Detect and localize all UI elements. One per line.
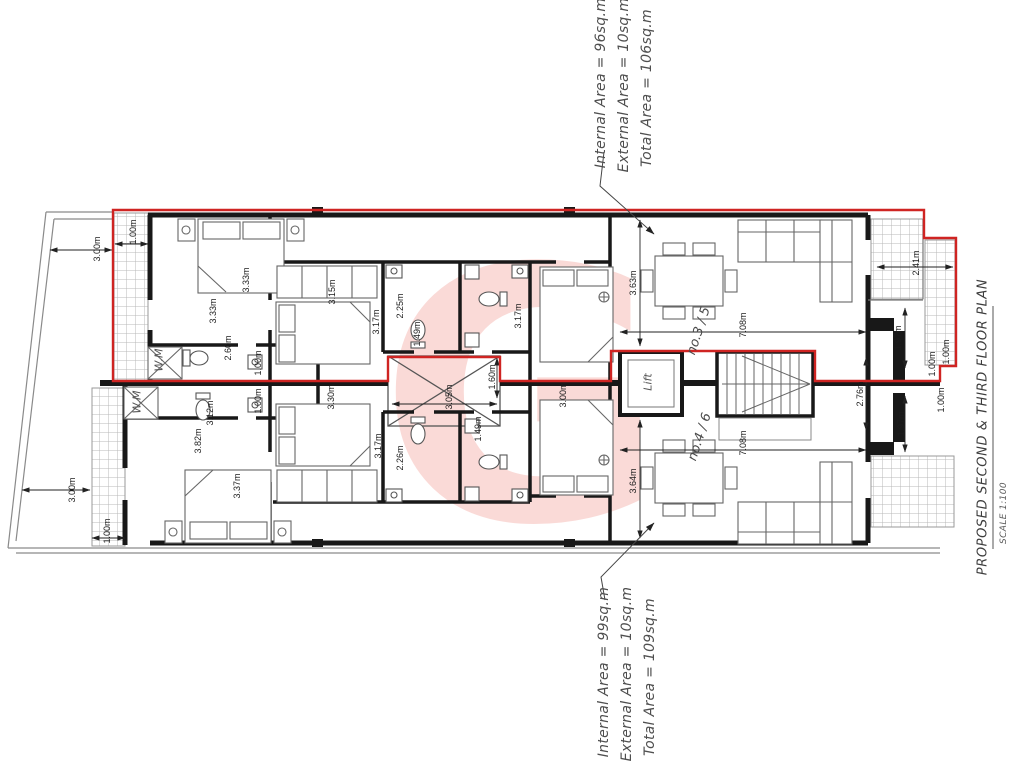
dimension-label: 3.33m bbox=[208, 298, 218, 323]
dimension-label: 1.97m bbox=[893, 325, 903, 350]
upper-internal-area-label: Internal Area = 96sq.m bbox=[593, 0, 609, 168]
lower-total-area-label: Total Area = 109sq.m bbox=[642, 598, 658, 756]
dimension-label: 1.00m bbox=[253, 388, 263, 413]
dimension-label: 1.00m bbox=[253, 350, 263, 375]
dimension-label: 1.60m bbox=[487, 364, 497, 389]
plan-linework: G bbox=[0, 0, 1024, 768]
dimension-label: 3.00m bbox=[67, 477, 77, 502]
dimension-label: 3.05m bbox=[444, 384, 454, 409]
dimension-label: 3.33m bbox=[241, 267, 251, 292]
dimension-label: 3.30m bbox=[326, 384, 336, 409]
dimension-label: 2.25m bbox=[395, 293, 405, 318]
dimension-label: 3.17m bbox=[373, 433, 383, 458]
dimension-label: 3.17m bbox=[513, 303, 523, 328]
dimension-label: 3.15m bbox=[327, 279, 337, 304]
dimension-label: 2.60m bbox=[223, 335, 233, 360]
lower-internal-area-label: Internal Area = 99sq.m bbox=[596, 587, 612, 758]
dimension-label: 1.00m bbox=[936, 387, 946, 412]
room-label: W.M bbox=[153, 349, 166, 372]
drawing-title: PROPOSED SECOND & THIRD FLOOR PLAN bbox=[976, 279, 991, 575]
dimension-label: 3.63m bbox=[628, 270, 638, 295]
dimension-label: 3.00m bbox=[558, 382, 568, 407]
dimension-label: 3.17m bbox=[371, 309, 381, 334]
dimension-label: 7.08m bbox=[738, 312, 748, 337]
dimension-label: 2.76m bbox=[855, 381, 865, 406]
dimension-label: 3.82m bbox=[193, 428, 203, 453]
drawing-scale: SCALE 1:100 bbox=[999, 482, 1009, 544]
dimension-label: 1.49m bbox=[473, 416, 483, 441]
upper-external-area-label: External Area = 10sq.m bbox=[616, 0, 632, 172]
dimension-label: 1.97m bbox=[896, 411, 906, 436]
room-label: Lift bbox=[642, 373, 655, 390]
dimension-label: 2.41m bbox=[911, 250, 921, 275]
dimension-label: 3.37m bbox=[232, 473, 242, 498]
dimension-label: 2.26m bbox=[395, 445, 405, 470]
dimension-label: 1.00m bbox=[927, 351, 937, 376]
dimension-label: 1.00m bbox=[941, 339, 951, 364]
dimension-label: 1.00m bbox=[128, 219, 138, 244]
room-label: W.M bbox=[131, 391, 144, 414]
upper-total-area-label: Total Area = 106sq.m bbox=[639, 9, 655, 167]
dimension-label: 1.49m bbox=[412, 321, 422, 346]
dimension-label: 3.12m bbox=[205, 400, 215, 425]
floor-plan-drawing: G bbox=[0, 0, 1024, 768]
dimension-label: 1.00m bbox=[102, 518, 112, 543]
dimension-label: 3.00m bbox=[92, 236, 102, 261]
dimension-label: 3.64m bbox=[628, 468, 638, 493]
lower-external-area-label: External Area = 10sq.m bbox=[619, 587, 635, 762]
dimension-label: 7.08m bbox=[738, 430, 748, 455]
